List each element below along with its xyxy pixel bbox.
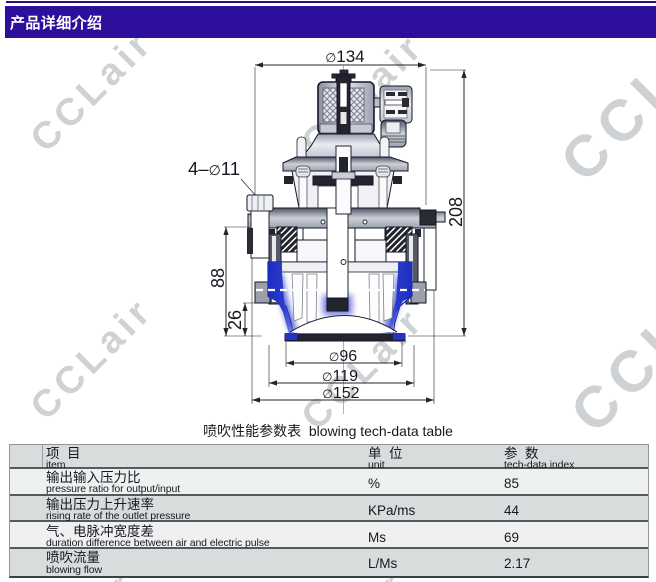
svg-text:∅152: ∅152: [322, 385, 359, 402]
svg-text:∅134: ∅134: [325, 47, 364, 66]
svg-text:4–∅11: 4–∅11: [188, 158, 240, 179]
svg-text:∅96: ∅96: [329, 348, 357, 365]
svg-text:88: 88: [208, 268, 228, 288]
svg-text:208: 208: [446, 197, 466, 227]
svg-text:26: 26: [225, 310, 245, 330]
svg-text:∅119: ∅119: [322, 368, 358, 385]
